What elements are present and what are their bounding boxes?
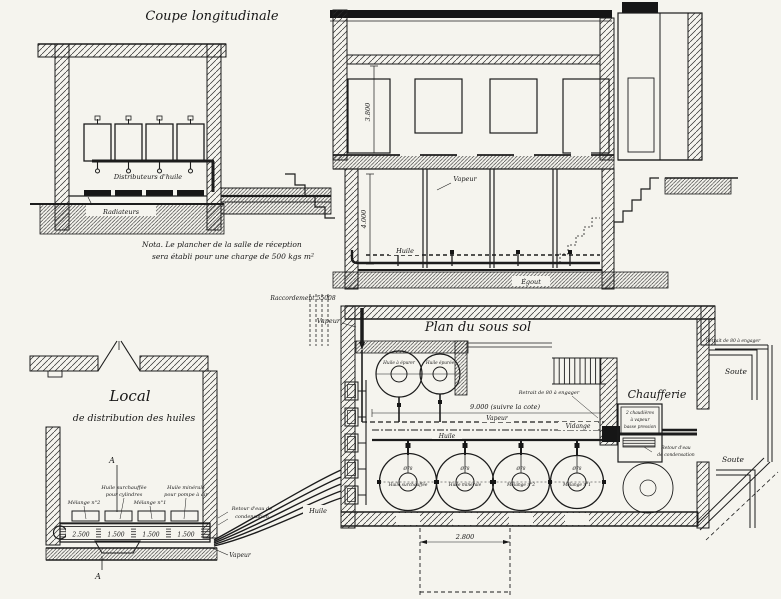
reservoir-value-1: 2.500 (71, 532, 89, 539)
plan-vapeur-label: Vapeur (486, 415, 509, 422)
retrait-note-right: Retrait de 80 à engager (705, 337, 761, 344)
local-bottom-wall (46, 548, 217, 560)
local-retour-label-1: Retour d'eau de (231, 506, 272, 512)
annex-window (628, 78, 654, 152)
plan-stairs (552, 358, 606, 384)
section-mark-a-bottom: A (94, 572, 101, 581)
reservoir-value-4: 1.500 (177, 532, 194, 539)
tank-1-dia: Ø78 (403, 466, 413, 472)
section-ceiling-band (347, 55, 600, 64)
big-tank-1: Ø78 Huile surchauffée (377, 454, 439, 511)
coupe-right-wall (207, 44, 221, 230)
big-tank-3: Ø78 Mélange n°2 (490, 454, 552, 511)
plan-top-wall (345, 306, 715, 319)
coupe-note-line2: sera établi pour une charge de 500 kgs m… (152, 252, 314, 261)
future-tank-outline (623, 463, 673, 513)
chaufferie-title: Chaufferie (628, 388, 687, 401)
coupe-title: Coupe longitudinale (145, 9, 278, 24)
local-distribution-view: Local de distribution des huiles A Huile… (30, 341, 272, 581)
section-egout-label: Égout (520, 277, 541, 286)
small-tank-2-label: Huile épurée (425, 361, 455, 366)
hall-floor-band (333, 155, 614, 169)
soute-lower-label: Soute (722, 455, 744, 464)
boiler-box: 2 chaudières à vapeur basse pression (618, 404, 662, 462)
local-door (98, 341, 140, 371)
reservoir-value-3: 1.500 (142, 532, 159, 539)
local-top-wall-right (140, 356, 208, 371)
local-retour-label-2: condensation (235, 514, 269, 520)
annex-structure (618, 2, 702, 160)
dim-9000: 9.000 (suivre la cote) (470, 403, 541, 411)
label-huile-minerale-1: Huile minérale (166, 484, 205, 491)
local-top-wall-left (30, 356, 98, 371)
big-tank-4: Ø78 Mélange n°1 (548, 456, 606, 509)
dim-3800: 3.800 (364, 103, 372, 122)
plan-huile-label: Huile (438, 433, 456, 440)
section-mark-a-top: A (108, 456, 115, 465)
coupe-radiators (84, 116, 204, 161)
dim-basement-height: 4.000 (360, 174, 374, 264)
big-tank-2: Ø78 Huile minérale (434, 454, 496, 511)
soute-partition-upper (697, 319, 709, 409)
small-tank-1: Huile à épurer (376, 351, 422, 397)
basement-left-wall (345, 169, 358, 289)
coupe-longitudinale-view: Coupe longitudinale Distributeurs d'huil… (30, 9, 331, 261)
plan-platform (356, 341, 468, 353)
label-melange-2: Mélange n°2 (67, 499, 101, 506)
tank-2-name: Huile minérale (448, 483, 482, 488)
local-vapeur-label: Vapeur (229, 552, 252, 559)
manifold-band: 2.500 1.500 1.500 1.500 (54, 523, 211, 542)
boiler-label-2: à vapeur (630, 418, 650, 423)
chimney-cap (622, 2, 658, 13)
section-right-wall (600, 18, 614, 160)
tank-4-name: Mélange n°1 (562, 483, 591, 488)
right-exterior-stairs (614, 178, 659, 233)
local-subtitle: de distribution des huiles (73, 413, 196, 424)
tank-3-name: Mélange n°2 (506, 483, 535, 488)
label-huile-surchauffee-2: pour cylindres (106, 492, 143, 498)
hidden-stairs-dashed (560, 218, 600, 263)
local-right-wall (203, 371, 217, 538)
basement-plan-view: Raccordement 55008 Plan du sous sol Vape… (214, 294, 778, 595)
basement-tank-partitions (423, 169, 557, 268)
local-title: Local (108, 387, 150, 405)
dim-4000: 4.000 (360, 210, 368, 230)
dim-pit: 2.800 (420, 533, 510, 544)
right-ground-hatch (665, 178, 731, 194)
dim-2800: 2.800 (455, 533, 475, 541)
boiler-label-3: basse pression (624, 425, 656, 430)
plan-vapeur-riser (359, 308, 365, 422)
drawing-canvas: Coupe longitudinale Distributeurs d'huil… (0, 0, 781, 599)
coupe-radiateurs-label: Radiateurs (102, 208, 140, 216)
plan-vapeur-riser-label: Vapeur (317, 317, 341, 325)
coupe-distributeurs-label: Distributeurs d'huile (113, 173, 182, 181)
coupe-left-wall (55, 44, 69, 230)
plan-bottom-wall (341, 512, 698, 526)
tank-2-dia: Ø78 (460, 466, 470, 472)
tank-4-dia: Ø78 (572, 466, 582, 472)
section-left-wall (333, 10, 347, 160)
boiler-label-1: 2 chaudières (625, 411, 655, 416)
local-left-wall (46, 427, 60, 545)
small-tank-1-label: Huile à épurer (382, 361, 416, 366)
tank-1-name: Huile surchauffée (388, 483, 428, 488)
basement-floor-hatch (333, 272, 614, 288)
basement-right-wall (602, 169, 614, 289)
hall-openings (348, 79, 609, 153)
reservoir-value-2: 1.500 (107, 532, 124, 539)
label-huile-surchauffee-1: Huile surchauffée (100, 484, 146, 491)
distribution-tanks (72, 511, 198, 521)
pipe-manifold (602, 426, 620, 442)
soute-upper-label: Soute (725, 367, 747, 376)
section-vapeur-label: Vapeur (453, 175, 477, 183)
roof-slab (330, 10, 612, 18)
plan-retour-label-2: de condensation (657, 452, 694, 458)
label-melange-1: Mélange n°1 (133, 499, 167, 506)
raccordement-label: Raccordement 55008 (269, 295, 336, 302)
plan-huile-exit-label: Huile (308, 507, 327, 515)
label-huile-minerale-2: pour pompe à air (164, 491, 208, 498)
small-tank-2: Huile épurée (420, 354, 460, 394)
plan-title: Plan du sous sol (424, 320, 531, 335)
blueprint-scan: Coupe longitudinale Distributeurs d'huil… (0, 0, 781, 599)
tank-3-dia: Ø78 (516, 466, 526, 472)
coupe-note-line1: Nota. Le plancher de la salle de récepti… (141, 240, 302, 249)
section-huile-label: Huile (395, 247, 414, 255)
plan-retour-label-1: Retour d'eau (660, 445, 691, 451)
retrait-note: Retrait de 80 à engager (518, 389, 580, 396)
plan-left-wall (341, 306, 355, 528)
main-section-view: 3.800 4.000 Vapeur (285, 2, 738, 289)
plan-vidange-label: Vidange (566, 423, 591, 430)
